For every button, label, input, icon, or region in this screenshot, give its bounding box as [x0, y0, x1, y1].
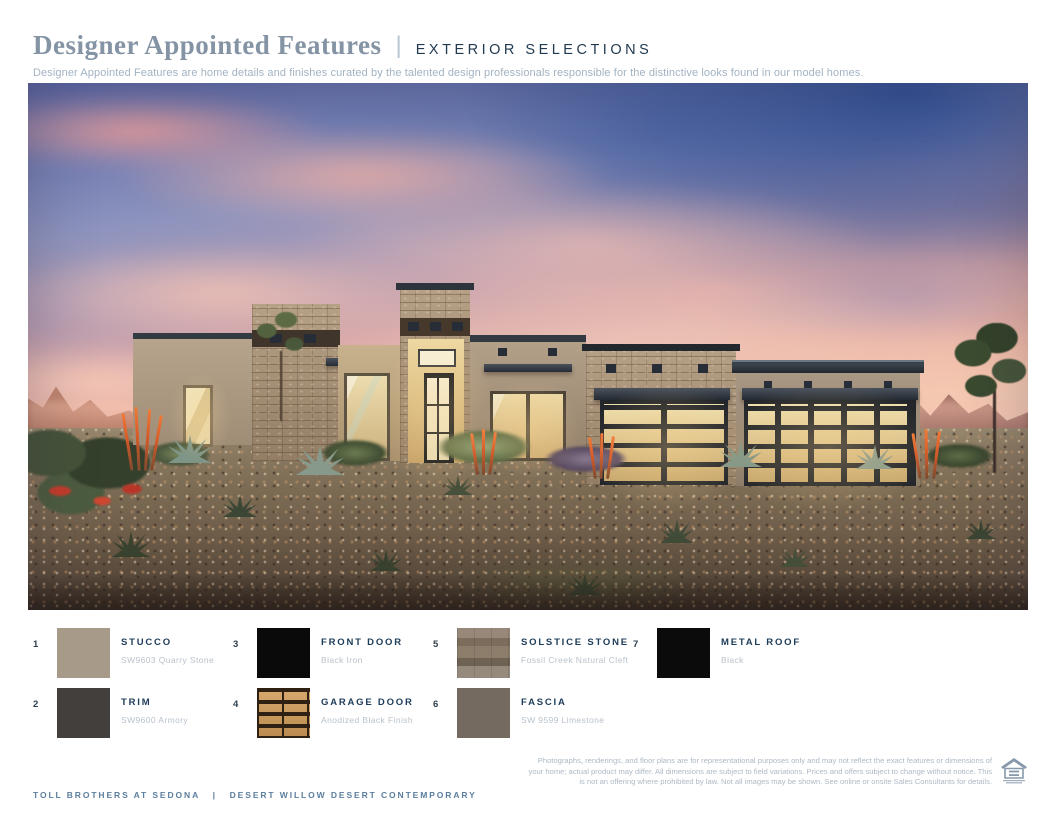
- section-tag: EXTERIOR SELECTIONS: [416, 42, 653, 58]
- swatch-value: SW9600 Armory: [121, 715, 188, 725]
- page-title: Designer Appointed Features: [33, 30, 382, 61]
- swatch-number: 5: [433, 628, 457, 650]
- swatch-label: GARAGE DOOR: [321, 697, 414, 708]
- swatch-number: 1: [33, 628, 57, 650]
- swatch-label: SOLSTICE STONE: [521, 637, 629, 648]
- swatch-value: SW 9599 Limestone: [521, 715, 604, 725]
- community-address: TOLL BROTHERS AT SEDONA | DESERT WILLOW …: [33, 760, 477, 815]
- fascia-swatch: [457, 688, 510, 738]
- swatch-number: 2: [33, 688, 57, 710]
- trim-swatch: [57, 688, 110, 738]
- stucco-swatch: [57, 628, 110, 678]
- equal-housing-opportunity-icon: [999, 756, 1029, 786]
- swatch-label: STUCCO: [121, 637, 214, 648]
- swatch-number: 4: [233, 688, 257, 710]
- swatch-item-fascia: 6 FASCIA SW 9599 Limestone: [433, 688, 633, 738]
- legal-disclaimer: Photographs, renderings, and floor plans…: [524, 756, 992, 788]
- vignette: [28, 83, 1028, 610]
- swatch-value: SW9603 Quarry Stone: [121, 655, 214, 665]
- swatch-value: Fossil Creek Natural Cleft: [521, 655, 629, 665]
- front-door-swatch: [257, 628, 310, 678]
- title-divider: |: [396, 32, 402, 60]
- page-description: Designer Appointed Features are home det…: [33, 67, 1033, 79]
- swatch-value: Black: [721, 655, 801, 665]
- swatch-label: TRIM: [121, 697, 188, 708]
- swatch-label: FRONT DOOR: [321, 637, 403, 648]
- page-header: Designer Appointed Features | EXTERIOR S…: [33, 30, 1033, 79]
- swatch-item-front-door: 3 FRONT DOOR Black Iron: [233, 628, 433, 678]
- swatch-label: FASCIA: [521, 697, 604, 708]
- swatch-item-solstice-stone: 5 SOLSTICE STONE Fossil Creek Natural Cl…: [433, 628, 633, 678]
- garage-door-swatch: [257, 688, 310, 738]
- swatch-label: METAL ROOF: [721, 637, 801, 648]
- swatch-item-stucco: 1 STUCCO SW9603 Quarry Stone: [33, 628, 233, 678]
- swatch-number: 6: [433, 688, 457, 710]
- selections-legend: 1 STUCCO SW9603 Quarry Stone 2 TRIM SW96…: [33, 628, 833, 738]
- swatch-item-trim: 2 TRIM SW9600 Armory: [33, 688, 233, 738]
- swatch-item-garage-door: 4 GARAGE DOOR Anodized Black Finish: [233, 688, 433, 738]
- swatch-item-metal-roof: 7 METAL ROOF Black: [633, 628, 833, 678]
- community-line1: TOLL BROTHERS AT SEDONA | DESERT WILLOW …: [33, 788, 477, 802]
- swatch-value: Anodized Black Finish: [321, 715, 414, 725]
- swatch-number: 7: [633, 628, 657, 650]
- solstice-stone-swatch: [457, 628, 510, 678]
- home-exterior-rendering: [28, 83, 1028, 610]
- swatch-number: 3: [233, 628, 257, 650]
- metal-roof-swatch: [657, 628, 710, 678]
- swatch-value: Black Iron: [321, 655, 403, 665]
